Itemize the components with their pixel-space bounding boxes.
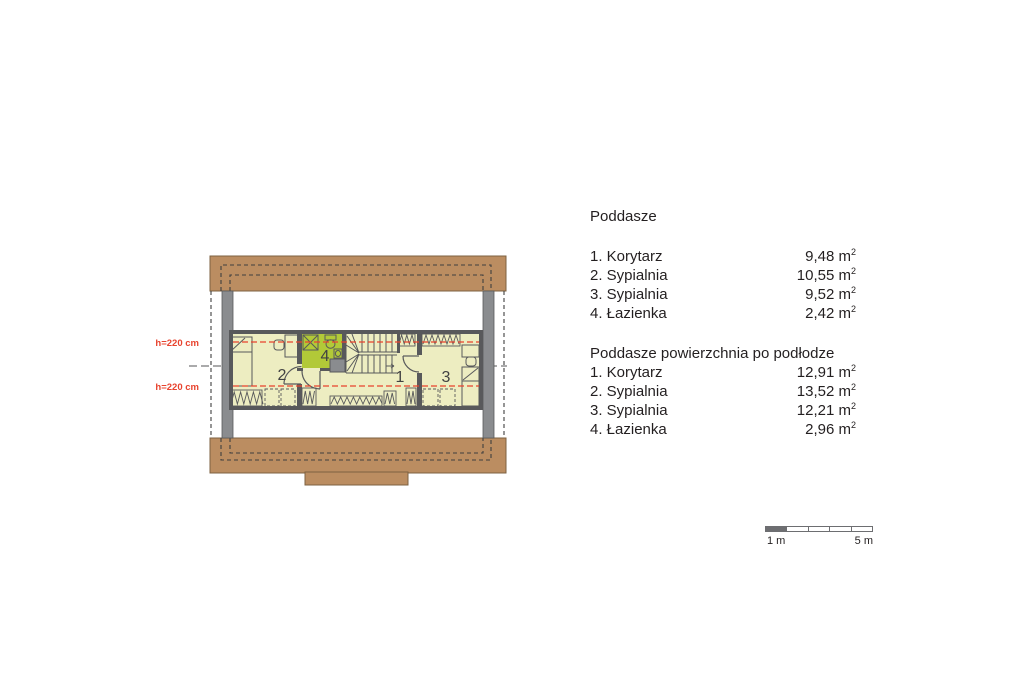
scale-segment [808, 526, 830, 532]
roof-bottom-band [210, 438, 506, 485]
room-area: 2,96 m2 [805, 420, 856, 439]
area-row: 3. Sypialnia 12,21 m2 [590, 401, 856, 420]
floor-plan-page: h=220 cm h=220 cm 2 4 1 3 Poddasze 1. Ko… [0, 0, 1024, 683]
section-title: Poddasze [590, 207, 856, 226]
room-label: 2. Sypialnia [590, 266, 668, 285]
room-label: 1. Korytarz [590, 247, 663, 266]
chimney-block [330, 359, 345, 372]
spacer [590, 226, 856, 247]
room-area: 2,42 m2 [805, 304, 856, 323]
room-label: 4. Łazienka [590, 420, 667, 439]
area-row: 4. Łazienka 2,42 m2 [590, 304, 856, 323]
scale-segment-filled [765, 526, 787, 532]
room-number-4: 4 [321, 348, 330, 365]
spacer [590, 323, 856, 344]
room-label: 1. Korytarz [590, 363, 663, 382]
gable-wall-right [483, 291, 494, 438]
area-row: 4. Łazienka 2,96 m2 [590, 420, 856, 439]
section-title: Poddasze powierzchnia po podłodze [590, 344, 856, 363]
area-row: 2. Sypialnia 10,55 m2 [590, 266, 856, 285]
room-number-1: 1 [396, 369, 405, 386]
room-number-3: 3 [442, 369, 451, 386]
room-number-2: 2 [278, 367, 287, 384]
room-area: 9,52 m2 [805, 285, 856, 304]
room-label: 4. Łazienka [590, 304, 667, 323]
room-label: 2. Sypialnia [590, 382, 668, 401]
roof-dormer-tab [305, 472, 408, 485]
scale-segment [829, 526, 851, 532]
scale-segment [786, 526, 808, 532]
height-label-bottom: h=220 cm [155, 382, 199, 393]
room-label: 3. Sypialnia [590, 401, 668, 420]
area-legend: Poddasze 1. Korytarz 9,48 m2 2. Sypialni… [590, 207, 856, 439]
room-area: 12,91 m2 [797, 363, 856, 382]
height-label-top: h=220 cm [155, 338, 199, 349]
room-area: 12,21 m2 [797, 401, 856, 420]
attic-floor-plan: h=220 cm h=220 cm 2 4 1 3 [0, 0, 1024, 683]
room-area: 9,48 m2 [805, 247, 856, 266]
room-area: 10,55 m2 [797, 266, 856, 285]
area-row: 2. Sypialnia 13,52 m2 [590, 382, 856, 401]
legend-section-floor: Poddasze powierzchnia po podłodze 1. Kor… [590, 344, 856, 439]
scale-label-1m: 1 m [767, 535, 785, 547]
area-row: 1. Korytarz 12,91 m2 [590, 363, 856, 382]
scale-bar-segments [765, 526, 873, 532]
area-row: 1. Korytarz 9,48 m2 [590, 247, 856, 266]
area-row: 3. Sypialnia 9,52 m2 [590, 285, 856, 304]
scale-label-5m: 5 m [855, 535, 873, 547]
roof-top-band [210, 256, 506, 291]
room-area: 13,52 m2 [797, 382, 856, 401]
scale-bar: 1 m 5 m [765, 526, 873, 550]
legend-section-usable: Poddasze 1. Korytarz 9,48 m2 2. Sypialni… [590, 207, 856, 323]
scale-segment [851, 526, 873, 532]
room-label: 3. Sypialnia [590, 285, 668, 304]
